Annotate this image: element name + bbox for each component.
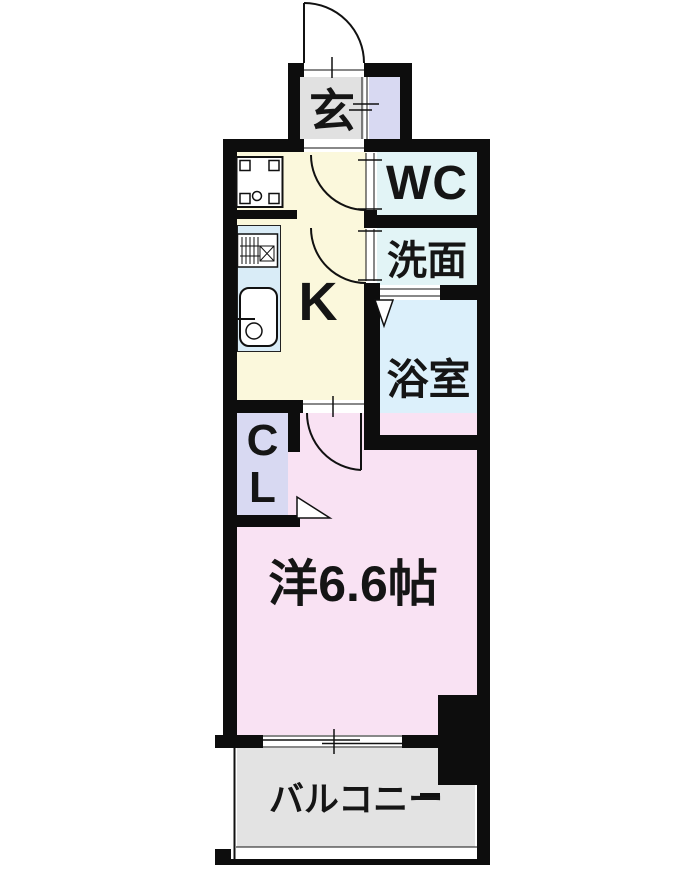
washroom-label: 洗面 <box>387 228 467 286</box>
entrance-door-arc <box>304 3 364 63</box>
bathroom-label: 浴室 <box>386 346 470 407</box>
wall-window-right-stub <box>402 735 438 748</box>
wall-outer-left <box>223 139 237 748</box>
room-wc: WC <box>377 152 477 215</box>
pillar <box>438 695 490 785</box>
kitchen-label: K <box>299 271 338 333</box>
room-washroom: 洗面 <box>377 228 477 285</box>
closet-label-line1: C <box>247 417 279 464</box>
shoe-storage-area <box>369 77 400 139</box>
wall-closet-bottom <box>223 515 300 527</box>
wall-balcony-bottom-line <box>215 859 490 865</box>
western-room-label: 洋6.6帖 <box>268 544 438 616</box>
kitchen-counter <box>237 225 281 352</box>
wall-washroom-bathroom-divider <box>440 285 477 300</box>
wall-bathroom-left <box>364 283 380 435</box>
wall-balcony-corner-left <box>215 849 231 865</box>
wall-window-left-stub <box>215 735 263 748</box>
wall-kitchen-bottom <box>223 400 303 413</box>
wall-washer-stub <box>237 210 297 219</box>
balcony-label: バルコニー <box>269 772 443 823</box>
wall-entrance-top-left <box>288 63 304 77</box>
floorplan: 玄 K WC 洗面 浴室 洋6.6帖 C L バルコニー <box>0 0 700 885</box>
wall-wc-washroom-divider <box>364 215 477 228</box>
wc-label: WC <box>386 156 468 211</box>
entrance-label: 玄 <box>309 75 355 141</box>
closet-label-line2: L <box>249 464 276 511</box>
wall-bathroom-bottom <box>364 435 490 450</box>
balcony-window-icon <box>263 740 402 744</box>
wall-unit-top-right <box>364 139 490 152</box>
room-entrance: 玄 <box>300 77 364 139</box>
wall-entrance-right <box>400 63 412 139</box>
wall-closet-right <box>288 413 300 452</box>
room-closet: C L <box>237 413 288 515</box>
